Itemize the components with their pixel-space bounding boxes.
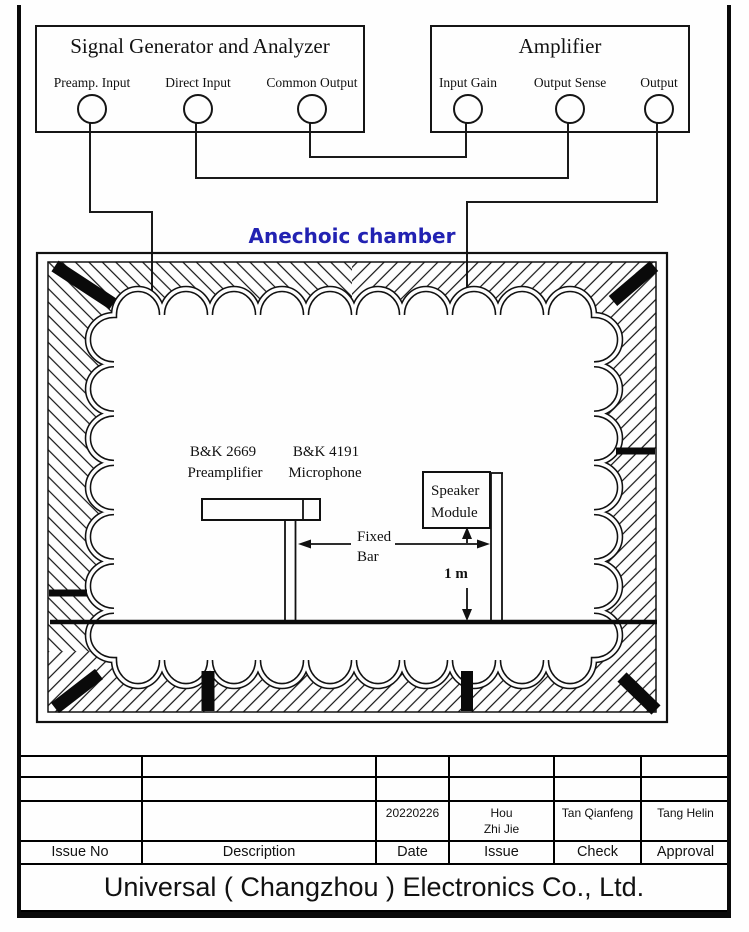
chamber-title: Anechoic chamber [37, 224, 667, 248]
table-cell-empty [450, 757, 555, 778]
issue-value: Hou Zhi Jie [450, 802, 555, 842]
port-input-gain-connector [453, 94, 483, 124]
date-value: 20220226 [377, 802, 450, 842]
header-issue: Issue [450, 842, 555, 863]
table-cell-empty [642, 757, 729, 778]
check-value: Tan Qianfeng [555, 802, 642, 842]
fixed-bar-label-line2: Bar [357, 549, 379, 565]
table-cell-empty [377, 757, 450, 778]
amplifier-box: Amplifier Input Gain Output Sense Output [430, 25, 690, 133]
company-name-bar: Universal ( Changzhou ) Electronics Co.,… [17, 863, 731, 912]
port-common-output-label: Common Output [266, 75, 357, 91]
title-block-table: 20220226 Hou Zhi Jie Tan Qianfeng Tang H… [17, 755, 731, 865]
port-output-connector [644, 94, 674, 124]
page-border-right [727, 5, 731, 918]
room-scallop-border [88, 289, 620, 686]
table-cell-empty [19, 778, 143, 802]
port-output-label: Output [640, 75, 678, 91]
mic-name-label: Microphone [288, 465, 362, 481]
table-cell-empty [19, 802, 143, 842]
issue-value-line1: Hou [450, 805, 553, 821]
port-direct-input-label: Direct Input [165, 75, 231, 91]
mic-model-label: B&K 4191 [293, 444, 359, 460]
speaker-label-line2: Module [431, 505, 478, 521]
table-cell-empty [555, 778, 642, 802]
port-preamp-input-connector [77, 94, 107, 124]
distance-label: 1 m [444, 566, 468, 582]
approval-value: Tang Helin [642, 802, 729, 842]
port-output-sense-label: Output Sense [534, 75, 606, 91]
preamp-name-label: Preamplifier [188, 465, 263, 481]
preamp-model-label: B&K 2669 [190, 444, 256, 460]
header-description: Description [143, 842, 377, 863]
table-cell-empty [143, 757, 377, 778]
page-border-bottom [17, 912, 731, 918]
page-border-left [17, 5, 21, 918]
amplifier-title: Amplifier [432, 34, 688, 59]
port-preamp-input-label: Preamp. Input [54, 75, 131, 91]
table-cell-empty [555, 757, 642, 778]
port-common-output-connector [297, 94, 327, 124]
fixed-bar-label-line1: Fixed [357, 529, 392, 545]
header-check: Check [555, 842, 642, 863]
port-output-sense-connector [555, 94, 585, 124]
table-cell-empty [19, 757, 143, 778]
table-cell-empty [143, 802, 377, 842]
table-cell-empty [377, 778, 450, 802]
signal-generator-box: Signal Generator and Analyzer Preamp. In… [35, 25, 365, 133]
table-cell-empty [450, 778, 555, 802]
port-direct-input-connector [183, 94, 213, 124]
header-approval: Approval [642, 842, 729, 863]
header-issue-no: Issue No [19, 842, 143, 863]
table-cell-empty [143, 778, 377, 802]
chamber-walls [37, 253, 667, 722]
header-date: Date [377, 842, 450, 863]
port-input-gain-label: Input Gain [439, 75, 497, 91]
signal-generator-title: Signal Generator and Analyzer [37, 34, 363, 59]
table-cell-empty [642, 778, 729, 802]
schematic-page: B&K 2669 Preamplifier B&K 4191 Microphon… [0, 0, 749, 932]
issue-value-line2: Zhi Jie [450, 821, 553, 837]
speaker-label-line1: Speaker [431, 483, 479, 499]
